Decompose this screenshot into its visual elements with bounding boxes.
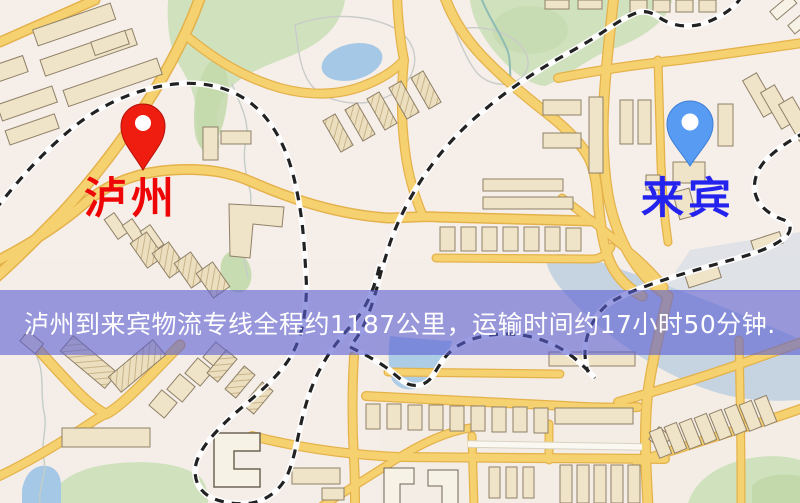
logistics-route-map-image: 泸州 来宾 泸州到来宾物流专线全程约1187公里，运输时间约17小时50分钟.	[0, 0, 800, 503]
route-info-text: 泸州到来宾物流专线全程约1187公里，运输时间约17小时50分钟.	[0, 305, 776, 341]
destination-label: 来宾	[641, 178, 735, 221]
map-canvas	[0, 0, 800, 503]
destination-pin-hole	[682, 114, 699, 131]
route-info-banner: 泸州到来宾物流专线全程约1187公里，运输时间约17小时50分钟.	[0, 290, 800, 355]
origin-pin-hole	[135, 115, 151, 131]
origin-label: 泸州	[84, 178, 178, 221]
minor-road	[468, 444, 642, 447]
